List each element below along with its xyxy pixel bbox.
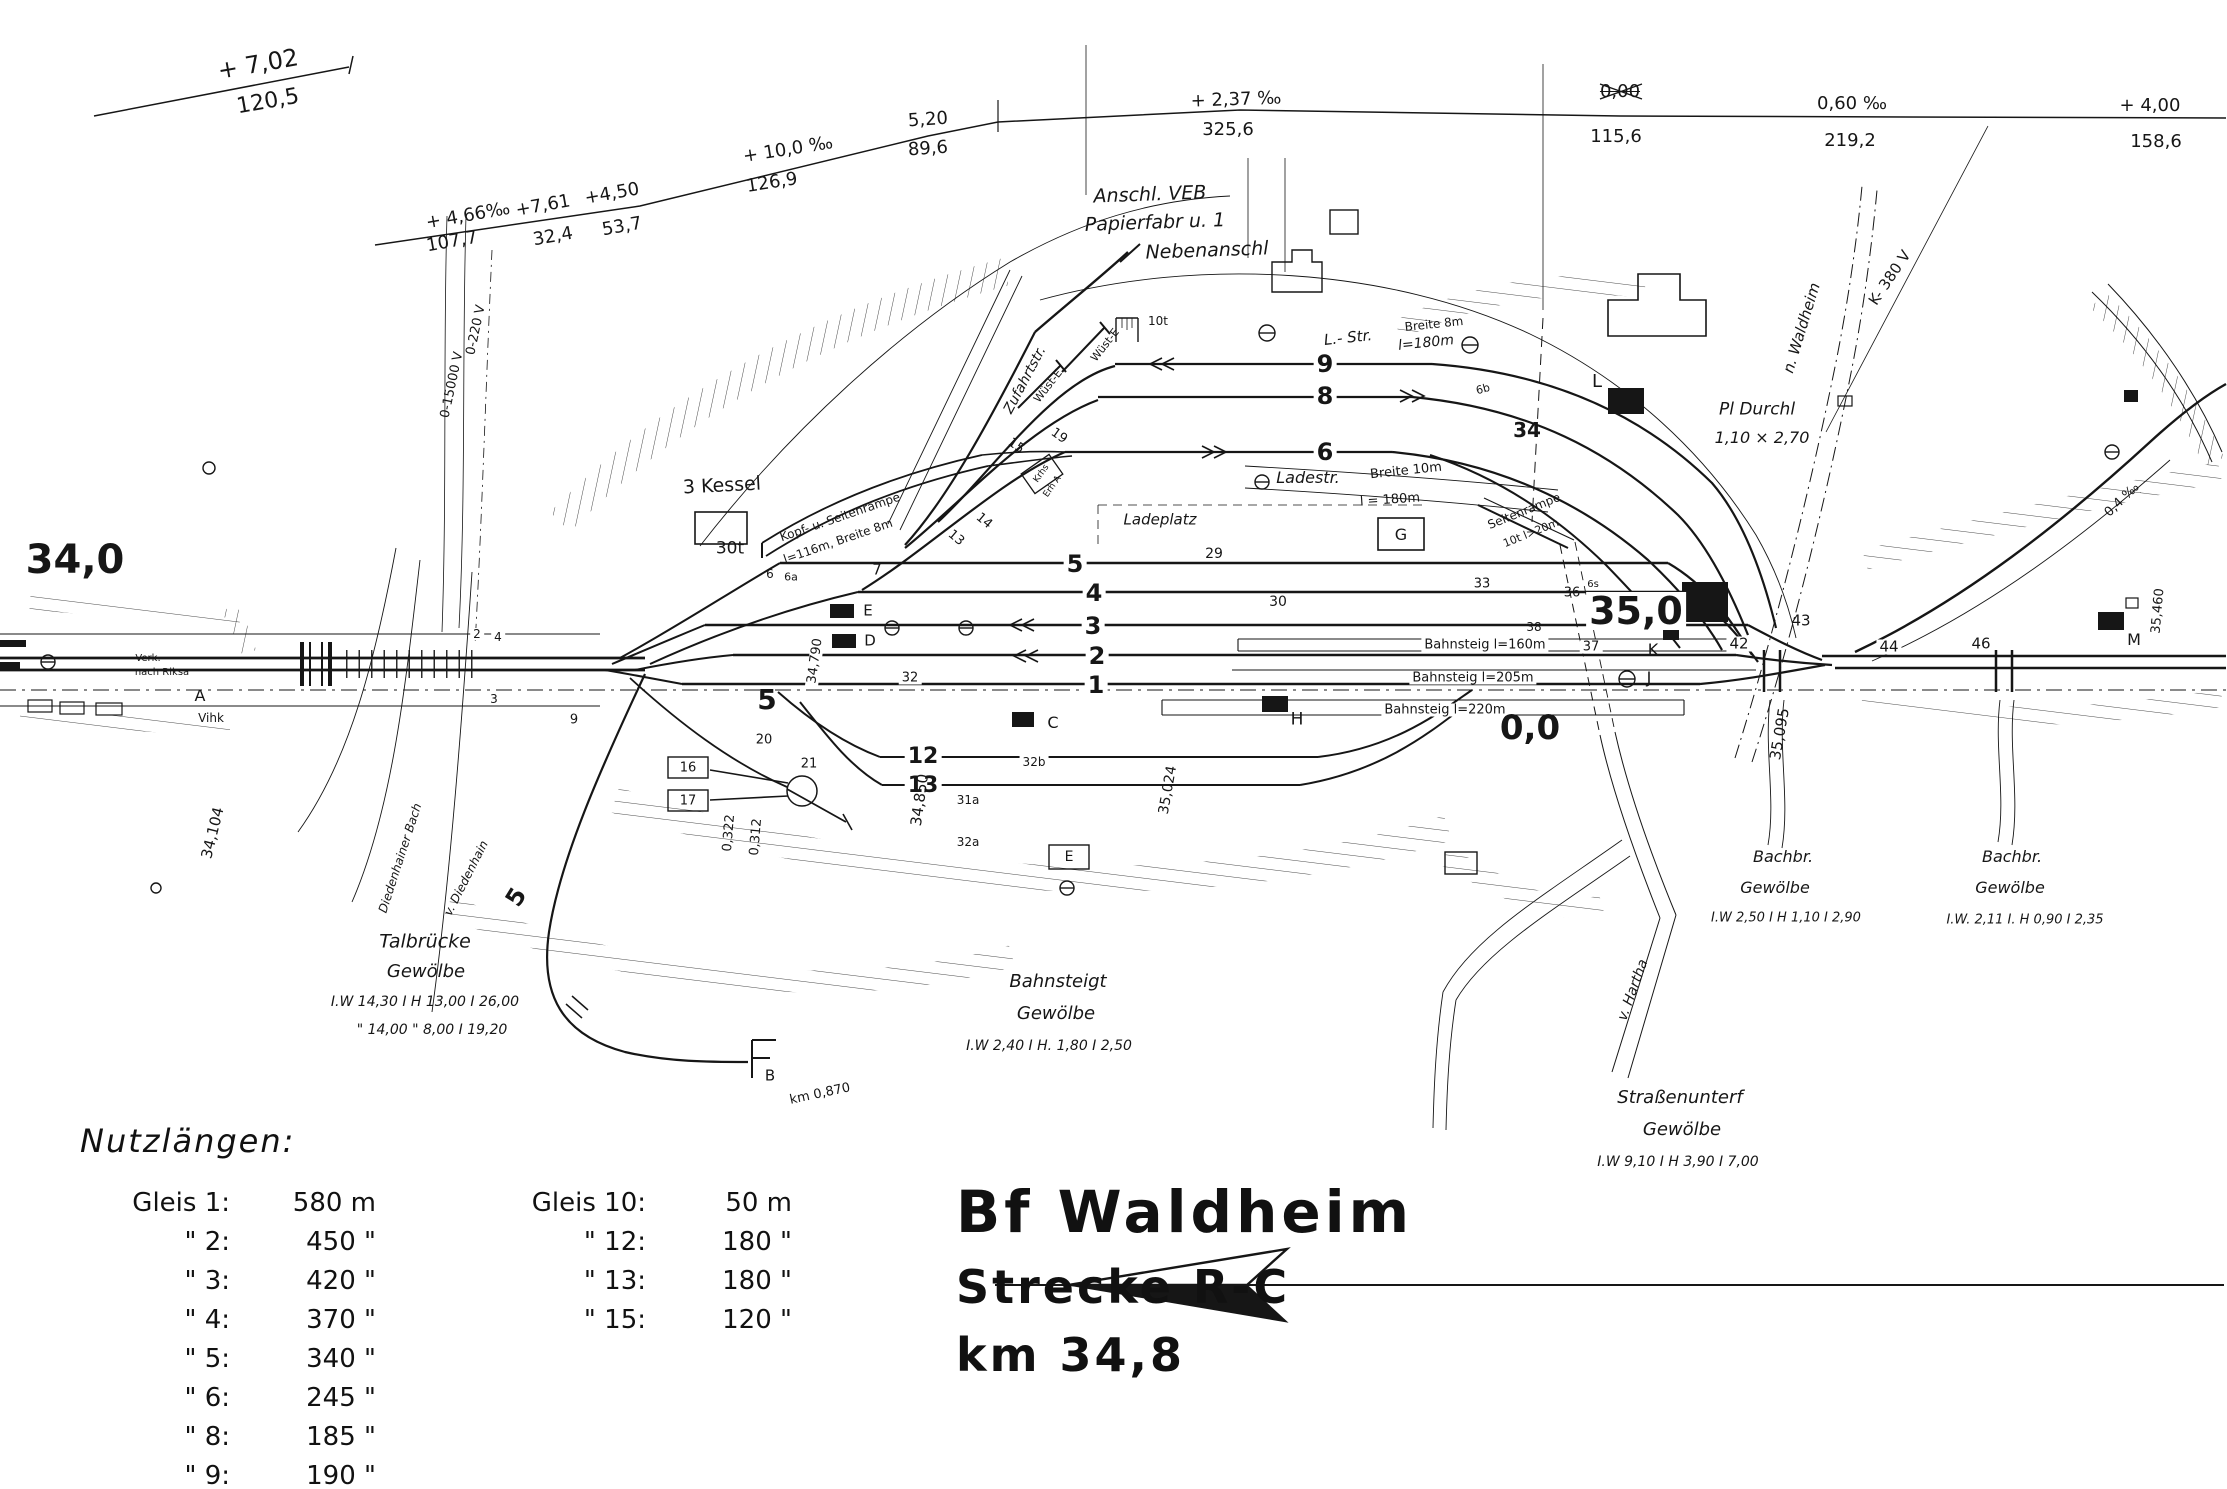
diagram-label: Gewölbe — [1017, 1005, 1095, 1023]
diagram-label: 0,4 ‰ — [2102, 481, 2141, 520]
diagram-label: 35,024 — [1157, 765, 1179, 816]
diagram-label: 325,6 — [1202, 121, 1254, 139]
diagram-label: Bachbr. — [1753, 849, 1813, 865]
diagram-label: 6a — [784, 572, 798, 583]
diagram-label: 17 — [680, 795, 697, 808]
diagram-label: 29 — [1205, 547, 1223, 561]
diagram-label: Bahnsteigt — [1009, 973, 1106, 991]
diagram-label: Erh A — [1042, 475, 1063, 500]
diagram-label: 12 — [905, 746, 942, 768]
diagram-label: K- 380 V — [1866, 248, 1913, 308]
nutzlaengen-row: " 13:180 " — [496, 1266, 792, 1296]
station-name: Bf Waldheim — [956, 1178, 1413, 1246]
diagram-label: 3 — [487, 693, 501, 705]
line-name: Strecke R-C — [956, 1260, 1413, 1314]
nutzlaengen-row: " 5:340 " — [80, 1344, 376, 1374]
track-label: " 5: — [80, 1344, 256, 1374]
diagram-label: 32 — [899, 672, 922, 685]
diagram-label: 34,104 — [199, 806, 226, 861]
diagram-label: 15 — [1005, 436, 1026, 456]
diagram-label: 14 — [973, 511, 994, 532]
track-length: 420 " — [256, 1266, 376, 1296]
diagram-label: 4 — [491, 631, 505, 643]
kilometer-value: km 34,8 — [956, 1328, 1413, 1382]
diagram-label: 0,322 — [721, 814, 737, 852]
diagram-label: 30t — [716, 541, 744, 558]
diagram-label: 2 — [470, 628, 484, 640]
diagram-label: C — [1047, 715, 1058, 731]
diagram-label: 0,60 ‰ — [1817, 95, 1887, 113]
diagram-label: " 14,00 " 8,00 I 19,20 — [357, 1023, 508, 1037]
diagram-label: Gewölbe — [1643, 1121, 1721, 1139]
diagram-label: 1 — [1085, 673, 1108, 697]
track-length: 120 " — [672, 1305, 792, 1335]
diagram-label: H — [1291, 712, 1304, 729]
diagram-label: 6b — [1475, 382, 1491, 396]
diagram-label: 37 — [1580, 641, 1603, 654]
nutzlaengen-table: Nutzlängen: Gleis 1:580 m" 2:450 "" 3:42… — [80, 1122, 792, 1489]
diagram-label: + 2,37 ‰ — [1190, 89, 1281, 110]
diagram-label: Wüst-E — [1089, 326, 1121, 363]
diagram-label: l=180m — [1397, 333, 1454, 353]
diagram-label: 10t — [1148, 315, 1168, 327]
diagram-label: 0,0 — [1500, 711, 1560, 745]
diagram-label: G — [1395, 527, 1407, 543]
diagram-label: 32,4 — [532, 225, 575, 250]
diagram-label: 107,7 — [425, 229, 479, 256]
diagram-label: 30 — [1269, 595, 1287, 609]
track-label: " 13: — [496, 1266, 672, 1296]
nutzlaengen-row: Gleis 10:50 m — [496, 1188, 792, 1218]
diagram-label: A — [195, 688, 206, 704]
diagram-label: E — [863, 604, 872, 619]
nutzlaengen-row: " 15:120 " — [496, 1305, 792, 1335]
diagram-label: Talbrücke — [379, 933, 471, 952]
diagram-label: + 4,00 — [2120, 97, 2181, 115]
diagram-label: Vihk — [198, 712, 224, 724]
diagram-label: I.W 9,10 I H 3,90 I 7,00 — [1597, 1155, 1758, 1169]
diagram-label: 0,312 — [748, 818, 764, 856]
diagram-label: Bahnsteig l=220m — [1381, 704, 1508, 717]
diagram-label: 126,9 — [745, 170, 799, 196]
diagram-label: +7,61 — [514, 192, 571, 219]
diagram-label: Papierfabr u. 1 — [1085, 211, 1226, 235]
diagram-label: 31a — [957, 794, 980, 806]
diagram-label: 89,6 — [907, 139, 948, 160]
diagram-label: 2 — [1086, 644, 1109, 668]
diagram-label: 9 — [570, 714, 578, 727]
nutzlaengen-heading: Nutzlängen: — [80, 1122, 792, 1160]
diagram-label: 32b — [1020, 756, 1049, 768]
diagram-label: Breite 8m — [1404, 315, 1464, 333]
diagram-label: J — [1647, 670, 1652, 686]
diagram-label: 7 — [872, 563, 882, 578]
diagram-label: 32a — [957, 836, 980, 848]
diagram-label: Bachbr. — [1982, 849, 2042, 865]
diagram-label: 53,7 — [601, 215, 644, 240]
diagram-label: Gewölbe — [1975, 880, 2045, 896]
track-length: 180 " — [672, 1227, 792, 1257]
diagram-label: B — [765, 1069, 775, 1084]
track-label: " 6: — [80, 1383, 256, 1413]
diagram-label: Bahnsteig l=205m — [1409, 672, 1536, 685]
diagram-label: l = 180m — [1359, 491, 1420, 508]
diagram-label: 20 — [756, 734, 773, 747]
track-label: Gleis 10: — [496, 1188, 672, 1218]
track-label: " 9: — [80, 1461, 256, 1489]
diagram-label: 5 — [757, 686, 776, 714]
track-label: " 12: — [496, 1227, 672, 1257]
diagram-label: 0-15000 V — [439, 351, 466, 420]
diagram-label: 1,10 × 2,70 — [1715, 430, 1810, 446]
diagram-label: I.W. 2,11 I. H 0,90 I 2,35 — [1946, 914, 2103, 927]
diagram-label: 35,460 — [2150, 588, 2167, 634]
track-plan-sheet: + 7,02120,5+ 4,66‰+7,61+4,50107,732,453,… — [0, 0, 2227, 1489]
diagram-label: 115,6 — [1590, 128, 1642, 146]
diagram-label: 5 — [1064, 552, 1087, 576]
diagram-label: v. Hartha — [1616, 958, 1651, 1023]
nutzlaengen-right-column: Gleis 10:50 m" 12:180 "" 13:180 "" 15:12… — [496, 1188, 792, 1489]
diagram-label: 0-220 V — [464, 304, 487, 356]
nutzlaengen-left-column: Gleis 1:580 m" 2:450 "" 3:420 "" 4:370 "… — [80, 1188, 376, 1489]
track-label: " 4: — [80, 1305, 256, 1335]
diagram-label: 35,095 — [1768, 707, 1792, 761]
track-length: 580 m — [256, 1188, 376, 1218]
track-length: 190 " — [256, 1461, 376, 1489]
nutzlaengen-row: " 8:185 " — [80, 1422, 376, 1452]
diagram-label: 4 — [1083, 581, 1106, 605]
nutzlaengen-row: " 6:245 " — [80, 1383, 376, 1413]
diagram-label: 33 — [1474, 578, 1491, 591]
track-length: 185 " — [256, 1422, 376, 1452]
diagram-label: 16 — [680, 762, 697, 775]
diagram-label: I.W 2,50 I H 1,10 I 2,90 — [1711, 912, 1861, 925]
diagram-label: 158,6 — [2130, 133, 2182, 151]
track-length: 50 m — [672, 1188, 792, 1218]
diagram-label: 34 — [1513, 420, 1541, 440]
diagram-label: 120,5 — [235, 86, 301, 119]
diagram-label: 8 — [1314, 384, 1337, 408]
diagram-label: L.- Str. — [1323, 328, 1373, 348]
diagram-label: Pl Durchl — [1719, 402, 1795, 419]
diagram-label: 3 Kessel — [683, 474, 762, 497]
diagram-label: Diedenhainer Bach — [377, 802, 424, 915]
diagram-label: 21 — [801, 758, 818, 771]
nutzlaengen-row: " 3:420 " — [80, 1266, 376, 1296]
diagram-label: nach Riksa — [135, 668, 189, 678]
diagram-label: Ladeplatz — [1124, 513, 1197, 528]
diagram-label: L — [1592, 373, 1602, 391]
diagram-label: 5,20 — [907, 110, 948, 131]
diagram-label: v. Diedenhain — [442, 839, 490, 918]
diagram-label: 13 — [945, 528, 966, 549]
diagram-label: 6 — [766, 568, 774, 580]
track-length: 450 " — [256, 1227, 376, 1257]
nutzlaengen-row: " 2:450 " — [80, 1227, 376, 1257]
diagram-label: 219,2 — [1824, 132, 1876, 150]
diagram-label: 34,790 — [805, 635, 825, 688]
diagram-label: Anschl. VEB — [1093, 184, 1206, 207]
diagram-label: Bahnsteig l=160m — [1421, 639, 1548, 652]
track-label: " 3: — [80, 1266, 256, 1296]
diagram-label: 5 — [501, 884, 530, 911]
diagram-label: 34,0 — [26, 540, 125, 580]
track-label: " 15: — [496, 1305, 672, 1335]
diagram-label: 9 — [1314, 352, 1337, 376]
track-label: " 8: — [80, 1422, 256, 1452]
diagram-label: Breite 10m — [1370, 461, 1443, 481]
diagram-label: I.W 2,40 I H. 1,80 I 2,50 — [966, 1039, 1132, 1053]
diagram-label: 6 — [1314, 440, 1337, 464]
diagram-label: Nebenanschl — [1145, 239, 1269, 262]
nutzlaengen-row: " 12:180 " — [496, 1227, 792, 1257]
track-length: 180 " — [672, 1266, 792, 1296]
diagram-label: K — [1648, 642, 1659, 658]
diagram-label: Ladestr. — [1276, 470, 1340, 486]
diagram-label: 42 — [1726, 637, 1751, 652]
track-length: 340 " — [256, 1344, 376, 1374]
diagram-label: 38 — [1526, 621, 1541, 633]
diagram-label: 44 — [1876, 640, 1901, 655]
diagram-label: I.W 14,30 I H 13,00 I 26,00 — [331, 995, 519, 1009]
diagram-label: Zufahrtstr. — [1001, 344, 1048, 416]
track-length: 245 " — [256, 1383, 376, 1413]
diagram-label: M — [2127, 632, 2141, 648]
diagram-label: 36 — [1564, 587, 1581, 600]
track-length: 370 " — [256, 1305, 376, 1335]
diagram-label: Gewölbe — [387, 963, 465, 981]
diagram-label: km 0,870 — [789, 1081, 852, 1107]
title-block: Bf Waldheim Strecke R-C km 34,8 — [956, 1178, 1413, 1382]
diagram-label: Straßenunterf — [1617, 1089, 1742, 1107]
diagram-label: Verk. — [135, 654, 160, 664]
diagram-label: 3 — [1082, 614, 1105, 638]
diagram-label: 43 — [1791, 614, 1810, 629]
diagram-label: 46 — [1968, 637, 1993, 652]
diagram-label: Gewölbe — [1740, 880, 1810, 896]
diagram-label: 34,850 — [909, 773, 931, 827]
track-label: " 2: — [80, 1227, 256, 1257]
diagram-label: E — [1065, 850, 1074, 864]
diagram-label: +4,50 — [583, 180, 640, 207]
track-label: Gleis 1: — [80, 1188, 256, 1218]
diagram-label: + 7,02 — [216, 45, 300, 83]
diagram-label: n. Waldheim — [1781, 281, 1823, 375]
diagram-label: 19 — [1048, 426, 1069, 446]
nutzlaengen-row: " 4:370 " — [80, 1305, 376, 1335]
diagram-label: D — [864, 634, 876, 649]
diagram-label: + 10,0 ‰ — [742, 134, 834, 166]
diagram-label: 35,0 — [1586, 592, 1686, 630]
nutzlaengen-row: " 9:190 " — [80, 1461, 376, 1489]
diagram-label: 0,00 — [1600, 83, 1640, 101]
nutzlaengen-row: Gleis 1:580 m — [80, 1188, 376, 1218]
